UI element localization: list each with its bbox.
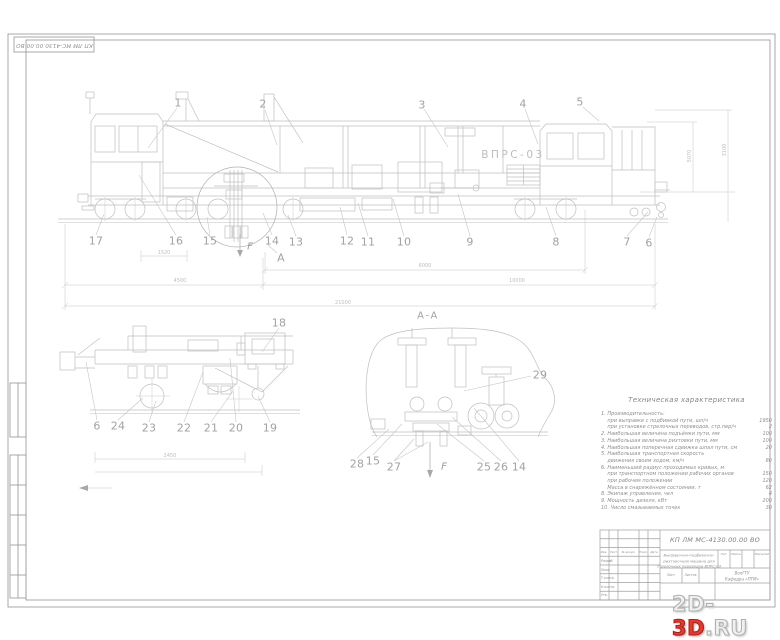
dim-value: 4500 <box>174 278 187 284</box>
dim-value: 1520 <box>158 250 171 256</box>
tb-sig-nkontr: Н.контр. <box>601 585 615 589</box>
callout-15: 15 <box>203 235 218 248</box>
callout-6b: 6 <box>93 420 100 433</box>
spec-row: 4. Наибольшая поперечная сдвижка шпал пу… <box>601 445 772 452</box>
title-block-designation: КП ЛМ МС-4130.00.00 ВО <box>660 532 770 548</box>
tb-sig-tkontr: Т.контр. <box>601 576 615 580</box>
callout-12: 12 <box>340 235 355 248</box>
spec-row: движения своим ходом, км/ч80 <box>601 458 772 465</box>
drawing-linework <box>0 0 780 624</box>
detail-view-lines <box>60 326 300 414</box>
callout-28: 28 <box>350 458 365 471</box>
spec-row: при транспортном положении рабочих орган… <box>601 471 772 478</box>
tb-header-izm: Изм. <box>601 550 608 554</box>
callout-8: 8 <box>552 236 559 249</box>
spec-row: 1. Производительность: <box>601 411 772 418</box>
main-view-lines <box>58 92 670 257</box>
spec-row: при рабочем положении120 <box>601 478 772 485</box>
callout-23: 23 <box>142 422 157 435</box>
title-block-name-line: Выправочно-подбивочно- <box>663 553 714 558</box>
callout-17: 17 <box>89 235 104 248</box>
callout-3: 3 <box>418 99 425 112</box>
dim-value-vertical: 3100 <box>722 144 728 157</box>
callout-29: 29 <box>533 369 548 382</box>
watermark-part3: .RU <box>705 616 748 640</box>
dim-value: 21000 <box>335 300 351 306</box>
corner-stamp: КП ЛМ МС-4130.00.00 ВО <box>14 37 94 52</box>
force-label-section: F <box>441 462 447 473</box>
force-label-main: F <box>247 242 253 253</box>
callout-22: 22 <box>177 422 192 435</box>
spec-row: 6. Наименьший радиус проходимых кривых, … <box>601 465 772 472</box>
tb-sig-utv: Утв. <box>601 593 608 597</box>
tb-header-podp: Подп. <box>639 550 647 554</box>
callout-16: 16 <box>169 235 184 248</box>
tb-header-list: Лист <box>610 550 617 554</box>
spec-row: при выправке с подбивкой пути, шп/ч1950 <box>601 418 772 425</box>
title-block-name-line: рихтовочная машина для <box>663 558 714 563</box>
callout-1: 1 <box>174 97 181 110</box>
spec-row: 10. Число смазываемых точек30 <box>601 505 772 512</box>
dim-value-vertical: 5070 <box>687 150 693 163</box>
callout-11: 11 <box>361 236 376 249</box>
tech-specs-title: Техническая характеристика <box>601 396 772 404</box>
callout-19: 19 <box>263 422 278 435</box>
tb-label-mass: Масса <box>731 552 741 556</box>
section-title: А-А <box>417 311 439 322</box>
leader-lines <box>86 107 657 461</box>
tb-label-scale: Масштаб <box>755 552 769 556</box>
spec-row: 5. Наибольшая транспортная скорость <box>601 451 772 458</box>
detail-letter-a: А <box>277 252 285 265</box>
tb-header-dokum: № докум. <box>622 550 636 554</box>
spec-row: Масса в снаряжённом состоянии, т62 <box>601 485 772 492</box>
watermark-2d3d: 2D-3D.RU <box>672 592 780 640</box>
title-block-name-line: стрелочных переводов ВПРС-03 <box>657 564 721 569</box>
tech-specs-block: Техническая характеристика 1. Производит… <box>601 396 772 512</box>
callout-24: 24 <box>111 420 126 433</box>
dim-value: 10000 <box>509 278 525 284</box>
tb-label-sheets: Листов <box>685 573 697 577</box>
spec-row: 3. Наибольшая величина рихтовки пути, мм… <box>601 438 772 445</box>
callout-4: 4 <box>519 98 526 111</box>
sheet-frame <box>8 34 775 607</box>
callout-25: 25 <box>477 461 492 474</box>
callout-20: 20 <box>229 422 244 435</box>
callout-6: 6 <box>645 237 652 250</box>
tb-sig-razrab: Разраб. <box>601 559 614 563</box>
tb-header-data: Дата <box>650 550 657 554</box>
callout-15b: 15 <box>366 455 381 468</box>
callout-10: 10 <box>397 236 412 249</box>
spec-row: 9. Мощность дизеля, кВт200 <box>601 498 772 505</box>
watermark-part1: 2D- <box>672 592 715 616</box>
title-block-org-line: ВолГТУ <box>735 571 750 576</box>
callout-9: 9 <box>466 236 473 249</box>
callout-18: 18 <box>272 317 287 330</box>
callout-14b: 14 <box>512 461 527 474</box>
dim-value: 6000 <box>419 263 432 269</box>
drawing-sheet: { "stamp_top": "КП ЛМ МС-4130.00.00 ВО",… <box>0 0 780 624</box>
dim-value: 2450 <box>164 453 177 459</box>
callout-13: 13 <box>289 236 304 249</box>
tb-label-lit: Лит. <box>721 552 728 556</box>
spec-row: при установке стрелочных переводов, стр.… <box>601 424 772 431</box>
corner-stamp-text: КП ЛМ МС-4130.00.00 ВО <box>16 42 93 48</box>
callout-7: 7 <box>623 236 630 249</box>
callout-2: 2 <box>259 98 266 111</box>
callout-26: 26 <box>494 461 509 474</box>
spec-row: 8. Экипаж управления, чел4 <box>601 491 772 498</box>
callout-14: 14 <box>265 235 280 248</box>
tb-label-sheet: Лист <box>667 573 675 577</box>
callout-5: 5 <box>576 96 583 109</box>
callout-21: 21 <box>204 422 219 435</box>
tb-sig-prov: Пров. <box>601 568 610 572</box>
machine-model-label: ВПРС-03 <box>481 149 544 161</box>
callout-27: 27 <box>387 461 402 474</box>
spec-row: 2. Наибольшая величина подъёмки пути, мм… <box>601 431 772 438</box>
title-block-org-line: Кафедра «ПТМ» <box>725 577 759 582</box>
watermark-part2: 3D <box>672 616 705 640</box>
section-view-lines <box>366 328 554 478</box>
